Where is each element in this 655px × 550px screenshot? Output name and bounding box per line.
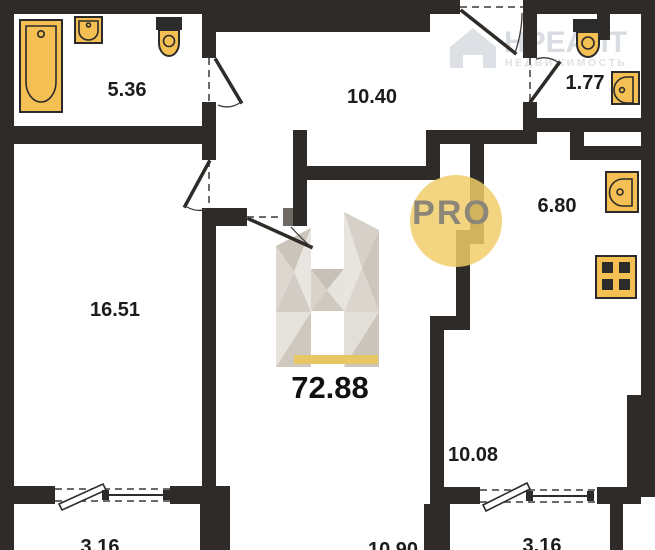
pro-badge-label: PRO: [412, 194, 492, 232]
area-label-hallway: 10.40: [347, 86, 397, 108]
bathtub-icon: [20, 20, 62, 112]
bathroom-door: [209, 58, 241, 107]
floor-plan: НРЕАЛТ НЕДВИЖИМОСТЬ: [0, 0, 655, 550]
pro-badge: PRO: [410, 175, 502, 267]
balcony-left-door-window: [55, 484, 170, 510]
bathroom-sink-icon: [75, 17, 102, 43]
stove-icon: [596, 256, 636, 298]
balcony-right-door-window: [480, 483, 597, 511]
h-logo-watermark: [276, 212, 379, 367]
bathroom-toilet-icon: [156, 17, 182, 56]
area-label-room-left: 16.51: [90, 299, 140, 321]
total-area-label: 72.88: [291, 370, 369, 405]
area-label-room-right: 10.08: [448, 444, 498, 466]
room-left-door: [185, 160, 209, 210]
kitchen-sink-icon: [606, 172, 638, 212]
floor-plan-svg: НРЕАЛТ НЕДВИЖИМОСТЬ: [0, 0, 655, 550]
area-label-bathroom: 5.36: [108, 79, 147, 101]
area-label-balcony-left: 3.16: [81, 536, 120, 550]
area-label-room-middle: 10.90: [368, 539, 418, 550]
area-label-balcony-right: 3.16: [523, 535, 562, 550]
watermark-subtitle: НЕДВИЖИМОСТЬ: [505, 57, 627, 69]
area-label-kitchen: 6.80: [538, 195, 577, 217]
wc-sink-icon: [612, 72, 639, 104]
logo-accent-bar: [294, 355, 378, 364]
area-label-wc: 1.77: [566, 72, 605, 94]
